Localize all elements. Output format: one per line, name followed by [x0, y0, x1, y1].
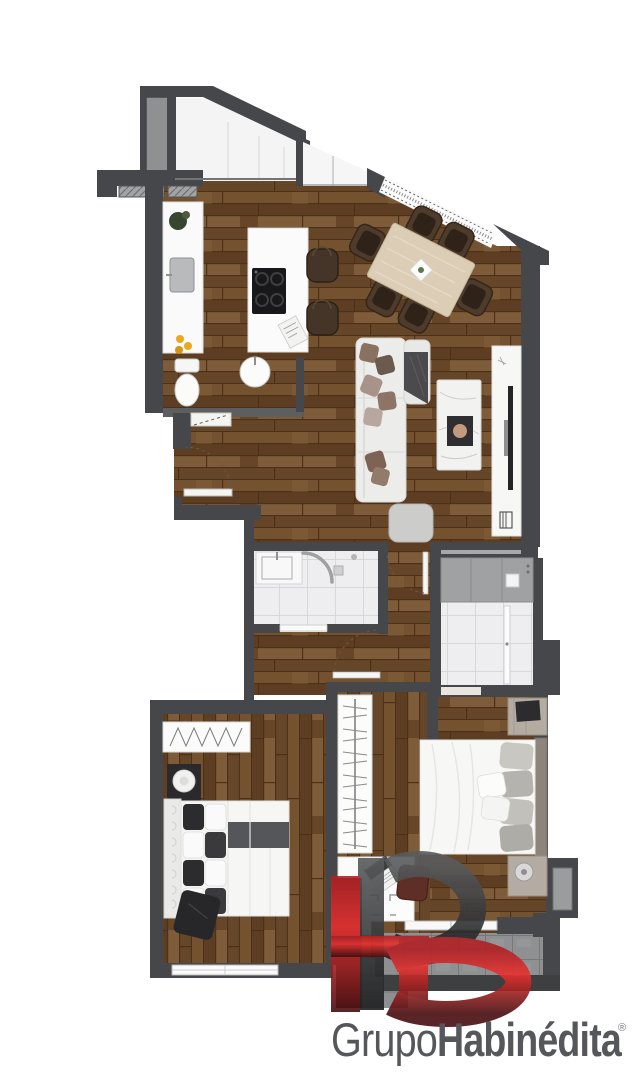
floorplan-page: Grupo Habinédita ®	[0, 0, 636, 1080]
tray-bowl	[453, 424, 467, 438]
toilet-tank	[175, 359, 199, 372]
wall-bathroom-south-b	[327, 624, 387, 633]
floorplan-rendering: Grupo Habinédita ®	[0, 0, 636, 1080]
check-pillow-5	[183, 860, 204, 886]
pouf	[389, 504, 433, 542]
service-shaft	[146, 97, 168, 172]
wall-bathroom-east	[378, 542, 388, 634]
check-pillow-6	[205, 860, 226, 886]
bedroom2-door-threshold	[441, 687, 481, 695]
pillow-5	[363, 407, 384, 428]
bed1-duvet	[228, 801, 289, 916]
wall-porch-block	[97, 170, 117, 197]
monogram-b-stem	[358, 858, 384, 1010]
laundry-sink	[506, 574, 519, 587]
bed2-small-pillow-1	[476, 772, 507, 799]
bar-stool-1	[307, 249, 338, 282]
wall-east-living	[521, 246, 540, 547]
wall-laundry-west	[430, 551, 441, 695]
laundry-shelf-slit	[441, 550, 521, 554]
shower-drain	[334, 566, 343, 575]
cooktop-knob	[255, 271, 258, 274]
bedroom1-door	[333, 672, 380, 678]
entry-door	[184, 489, 232, 496]
wall-bedroom1-west	[150, 700, 163, 978]
wall-wc-east	[296, 357, 304, 412]
laundry-item-1	[527, 565, 530, 568]
tv-soundbar	[504, 420, 508, 456]
wall-balcony-north	[497, 917, 547, 934]
bathroom-door	[280, 625, 327, 631]
pillow-4	[377, 391, 397, 411]
bed2-small-pillow-2	[480, 795, 510, 822]
brand-name-light: Grupo	[331, 1013, 437, 1066]
wall-hall-southwest	[174, 505, 261, 520]
lemon-3	[175, 346, 183, 354]
check-pillow-2	[205, 804, 226, 830]
tv	[508, 386, 513, 490]
lemon-1	[176, 335, 184, 343]
exterior-patch-lower-left	[168, 520, 245, 548]
toilet-bowl	[175, 374, 199, 406]
bed2-pillow-1	[499, 742, 534, 771]
shower-head	[351, 554, 357, 560]
wall-kitchen-west	[145, 172, 163, 413]
wall-balcony-east	[543, 915, 560, 977]
wall-entry-north	[173, 413, 191, 449]
check-pillow-3	[183, 832, 204, 858]
brand-name-bold: Habinédita	[437, 1013, 622, 1066]
dresser-object	[515, 700, 540, 722]
porch-hatch-2	[168, 186, 197, 197]
bed2-headboard	[535, 738, 547, 856]
kitchen-sink	[170, 258, 194, 292]
bed2-pillow-4	[499, 824, 534, 853]
lemon-2	[184, 342, 192, 350]
wall-middle-west	[244, 520, 254, 708]
registered-mark: ®	[618, 1022, 626, 1034]
bedroom2-window-glass	[553, 868, 572, 910]
bar-stool-2	[307, 302, 338, 335]
bed1-runner	[228, 822, 289, 848]
lamp-inner	[180, 777, 189, 786]
kitchen-plant-leaf	[182, 211, 190, 219]
nightstand-lamp-center	[521, 869, 527, 875]
wall-top-cap	[140, 86, 206, 97]
wall-bathroom-south-a	[254, 624, 280, 633]
wc-door	[191, 413, 231, 426]
hall-door	[423, 552, 428, 594]
laundry-item-2	[527, 571, 530, 574]
wall-bedroom1-north	[150, 700, 326, 714]
wall-bathroom-north	[254, 542, 387, 551]
wall-closet-north	[326, 682, 438, 692]
laundry-door-handle	[505, 642, 508, 645]
check-pillow-1	[183, 804, 204, 830]
wall-shaft-right	[167, 97, 176, 181]
check-pillow-4	[205, 832, 226, 858]
